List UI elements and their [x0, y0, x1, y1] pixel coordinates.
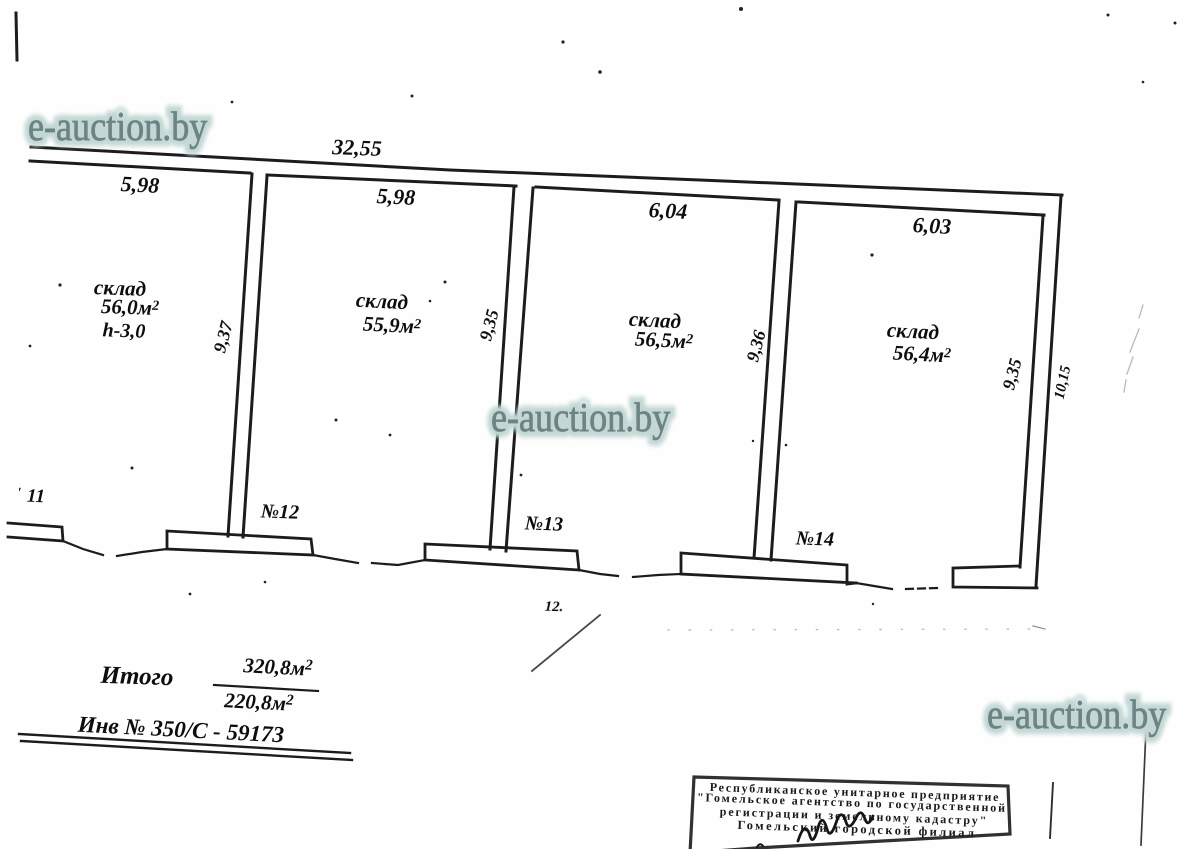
- svg-text:56,5м2: 56,5м2: [634, 326, 693, 353]
- svg-text:32,55: 32,55: [331, 134, 382, 161]
- svg-text:склад: склад: [355, 288, 408, 315]
- svg-text:56,0м2: 56,0м2: [101, 294, 160, 320]
- svg-text:5,98: 5,98: [376, 183, 416, 210]
- svg-text:5,98: 5,98: [120, 171, 160, 198]
- svg-text:Итого: Итого: [99, 662, 174, 692]
- svg-text:e-auction.by: e-auction.by: [28, 105, 208, 150]
- svg-text:320,8м2: 320,8м2: [242, 653, 314, 681]
- svg-text:6,03: 6,03: [912, 212, 952, 239]
- svg-text:11: 11: [27, 486, 46, 508]
- svg-text:№13: №13: [523, 512, 563, 535]
- svg-text:220,8м2: 220,8м2: [223, 688, 295, 716]
- svg-text:e-auction.by: e-auction.by: [491, 396, 671, 441]
- svg-text:55,9м2: 55,9м2: [362, 311, 421, 338]
- svg-text:№12: №12: [259, 500, 299, 523]
- svg-text:e-auction.by: e-auction.by: [987, 693, 1167, 738]
- svg-text:h-3,0: h-3,0: [102, 319, 146, 342]
- svg-text:№14: №14: [794, 527, 834, 550]
- svg-text:56,4м2: 56,4м2: [892, 340, 951, 367]
- svg-text:6,04: 6,04: [648, 197, 688, 224]
- svg-text:': ': [17, 486, 22, 501]
- svg-text:12.: 12.: [544, 599, 563, 616]
